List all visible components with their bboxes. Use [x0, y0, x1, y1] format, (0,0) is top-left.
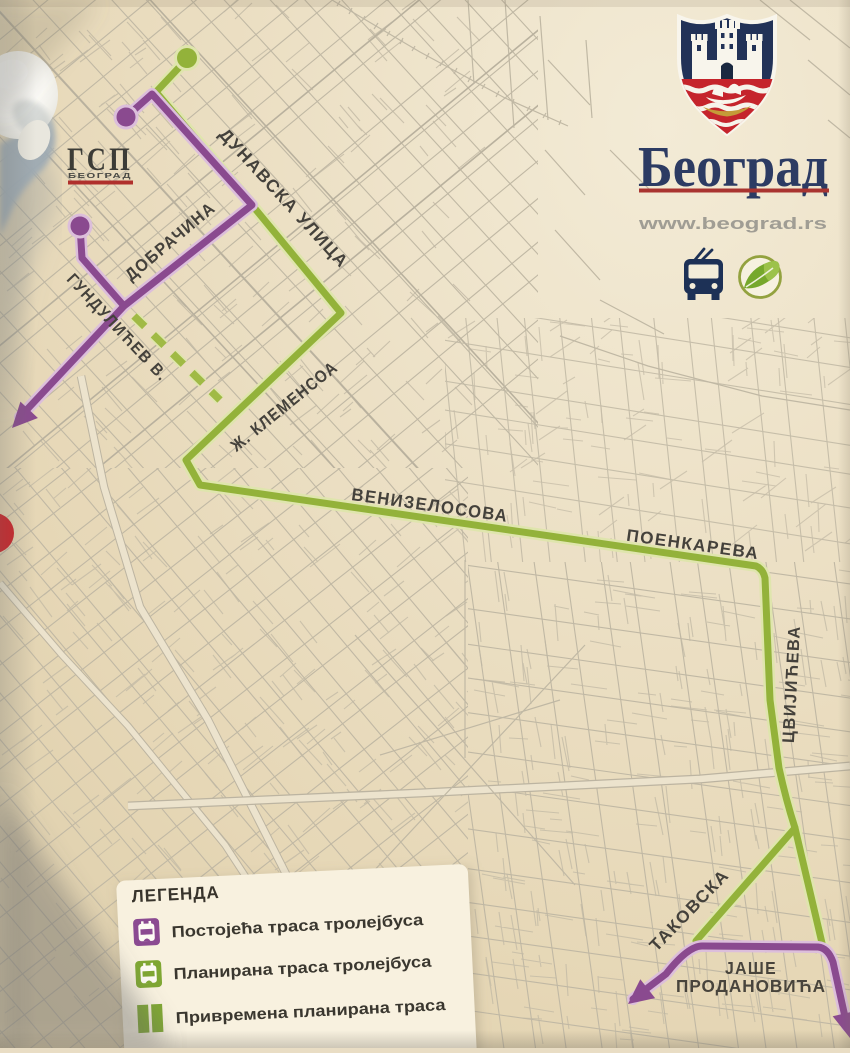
- svg-text:www.beograd.rs: www.beograd.rs: [638, 215, 827, 233]
- svg-text:ЈАШЕ: ЈАШЕ: [725, 958, 777, 978]
- svg-text:БЕОГРАД: БЕОГРАД: [68, 171, 132, 180]
- svg-text:ПРОДАНОВИЋА: ПРОДАНОВИЋА: [676, 976, 826, 996]
